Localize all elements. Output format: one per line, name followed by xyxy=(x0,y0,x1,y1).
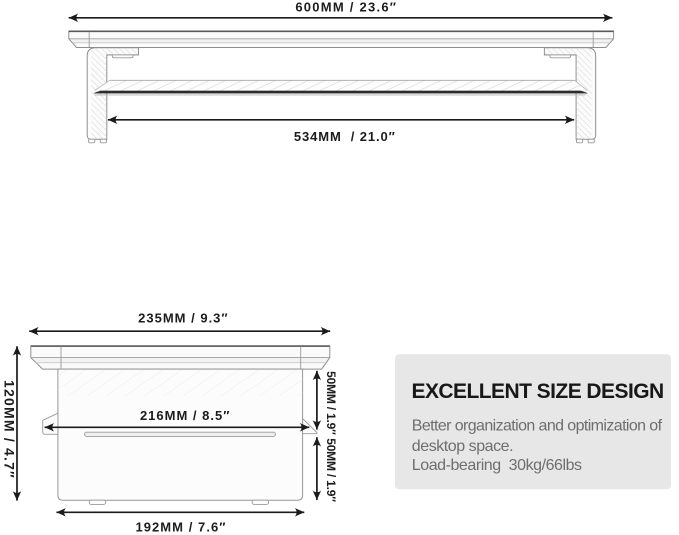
svg-text:192MM / 7.6″: 192MM / 7.6″ xyxy=(135,520,226,535)
svg-text:534MM / 21.0″: 534MM / 21.0″ xyxy=(294,129,396,144)
svg-text:600MM / 23.6″: 600MM / 23.6″ xyxy=(295,0,397,15)
svg-text:Better organization and optimi: Better organization and optimization of xyxy=(412,417,663,434)
svg-text:216MM / 8.5″: 216MM / 8.5″ xyxy=(140,408,230,423)
svg-text:50MM / 1.9″: 50MM / 1.9″ xyxy=(324,371,338,435)
svg-text:EXCELLENT SIZE DESIGN: EXCELLENT SIZE DESIGN xyxy=(412,380,664,403)
svg-text:235MM / 9.3″: 235MM / 9.3″ xyxy=(138,311,228,326)
svg-text:desktop space.: desktop space. xyxy=(412,438,513,455)
svg-text:Load-bearing 30kg/66lbs: Load-bearing 30kg/66lbs xyxy=(412,457,582,474)
svg-text:50MM / 1.9″: 50MM / 1.9″ xyxy=(324,438,338,502)
svg-text:120MM / 4.7″: 120MM / 4.7″ xyxy=(1,380,17,479)
